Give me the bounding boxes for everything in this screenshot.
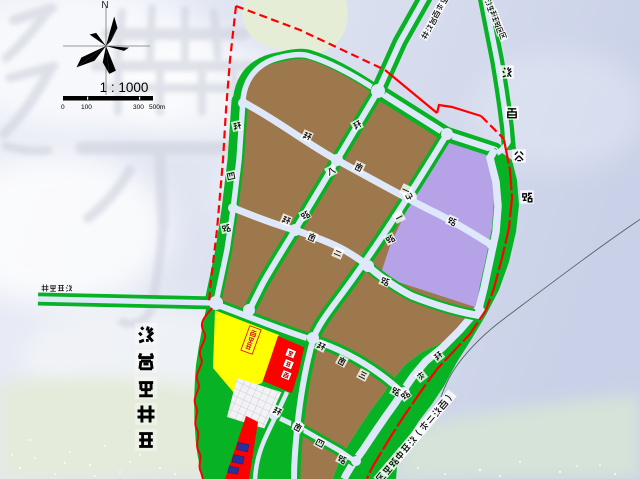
svg-text:N: N bbox=[101, 0, 108, 11]
svg-text:500m: 500m bbox=[149, 104, 165, 111]
svg-text:100: 100 bbox=[81, 104, 92, 111]
svg-text:0: 0 bbox=[61, 104, 65, 111]
svg-text:300: 300 bbox=[133, 104, 144, 111]
svg-text:1 : 1000: 1 : 1000 bbox=[100, 80, 149, 95]
